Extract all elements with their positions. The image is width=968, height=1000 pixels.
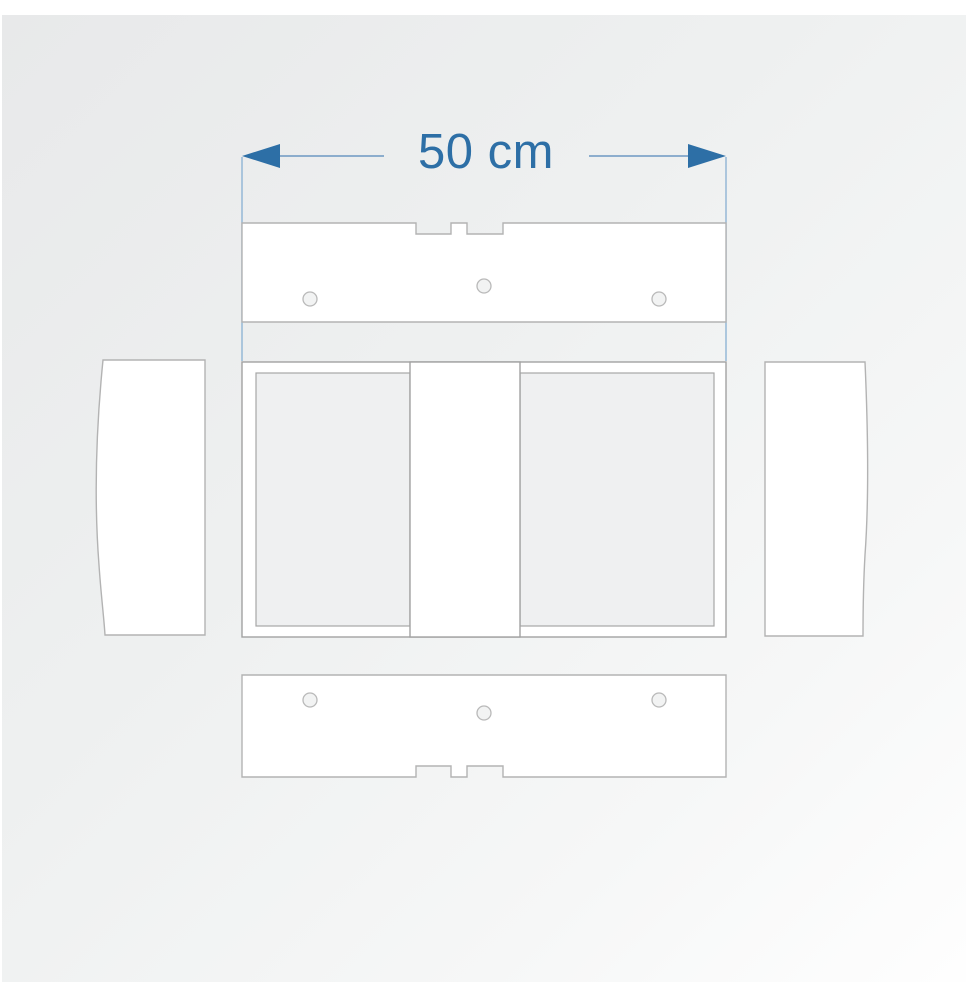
bottom-panel-outline: [242, 675, 726, 777]
dimension-label: 50 cm: [418, 125, 554, 179]
bottom-panel: [242, 675, 726, 777]
dowel-hole: [477, 706, 491, 720]
center-divider-panel: [410, 362, 520, 637]
dimension-arrow-left-icon: [242, 144, 280, 168]
dowel-hole: [652, 292, 666, 306]
dowel-hole: [303, 292, 317, 306]
dimension-arrow-right-icon: [688, 144, 726, 168]
dowel-hole: [477, 279, 491, 293]
carcass-front-view: [242, 362, 726, 637]
carcass-left-opening: [256, 373, 410, 626]
assembly-diagram: 50 cm: [0, 0, 968, 1000]
dowel-hole: [652, 693, 666, 707]
dowel-hole: [303, 693, 317, 707]
top-panel: [242, 223, 726, 322]
carcass-right-opening: [520, 373, 714, 626]
top-panel-outline: [242, 223, 726, 322]
furniture-assembly-drawing: 50 cm: [0, 0, 968, 1000]
left-side-panel: [96, 360, 205, 635]
right-side-panel: [765, 362, 868, 636]
